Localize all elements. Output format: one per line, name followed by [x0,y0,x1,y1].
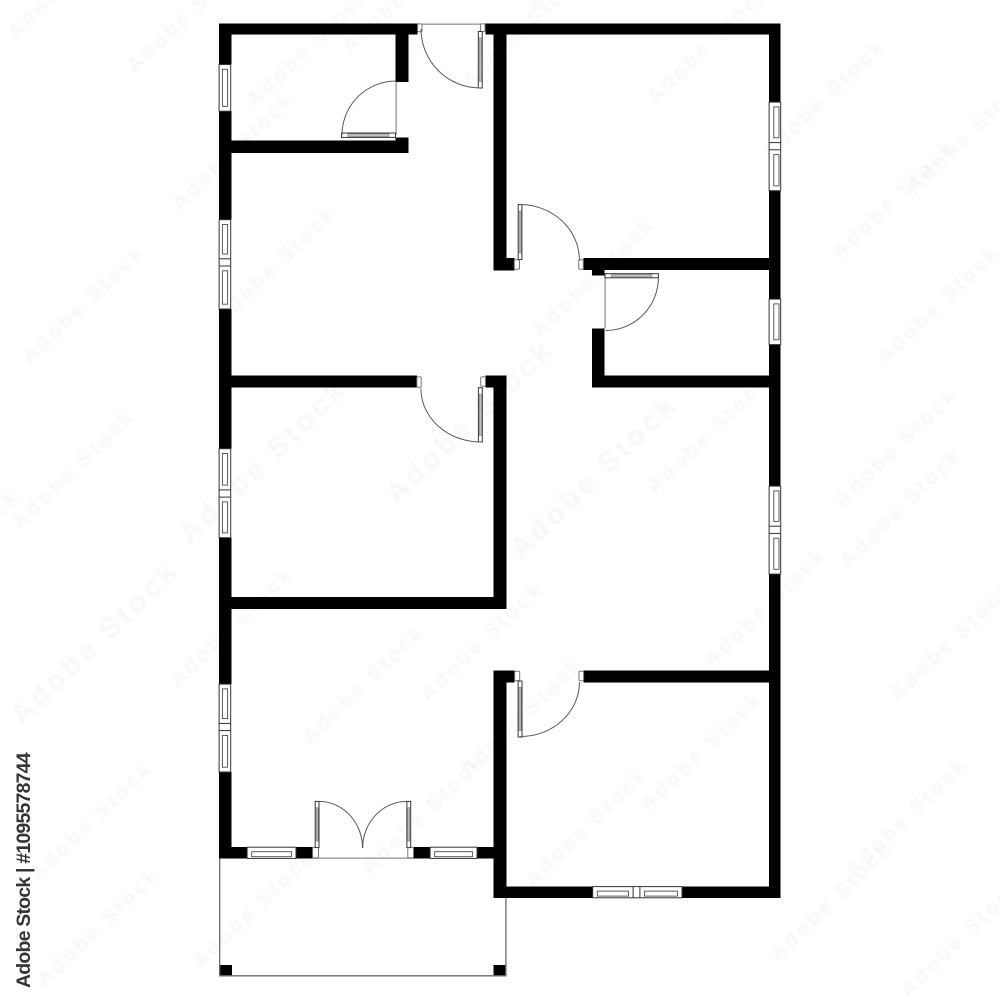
svg-text:Adobe Stock | #1095578744: Adobe Stock | #1095578744 [13,752,35,988]
